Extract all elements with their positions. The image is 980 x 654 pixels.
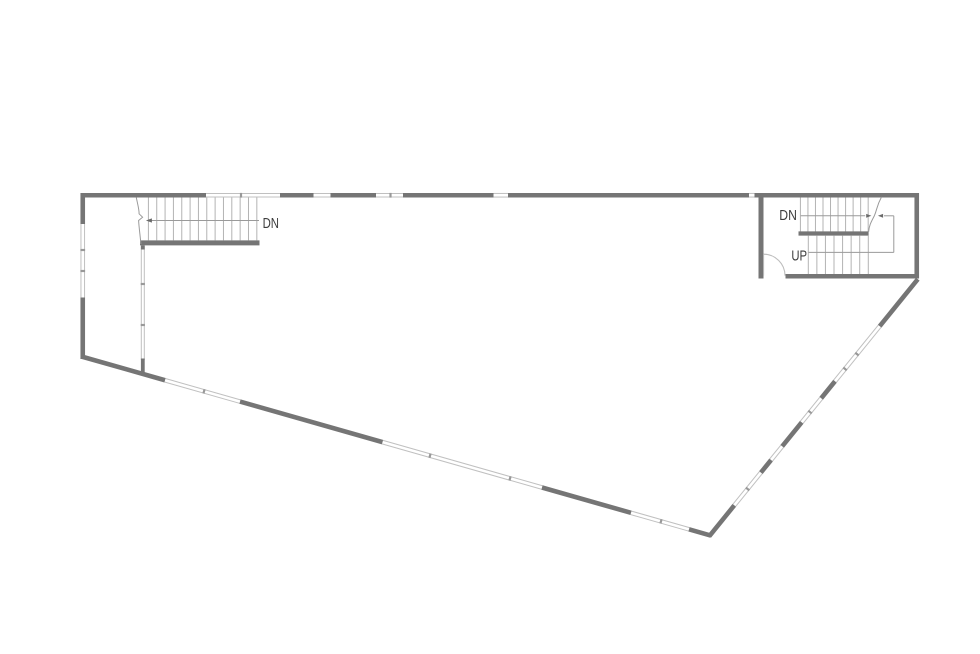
svg-text:DN: DN bbox=[779, 208, 797, 224]
svg-text:UP: UP bbox=[791, 249, 807, 265]
svg-text:DN: DN bbox=[263, 215, 279, 232]
